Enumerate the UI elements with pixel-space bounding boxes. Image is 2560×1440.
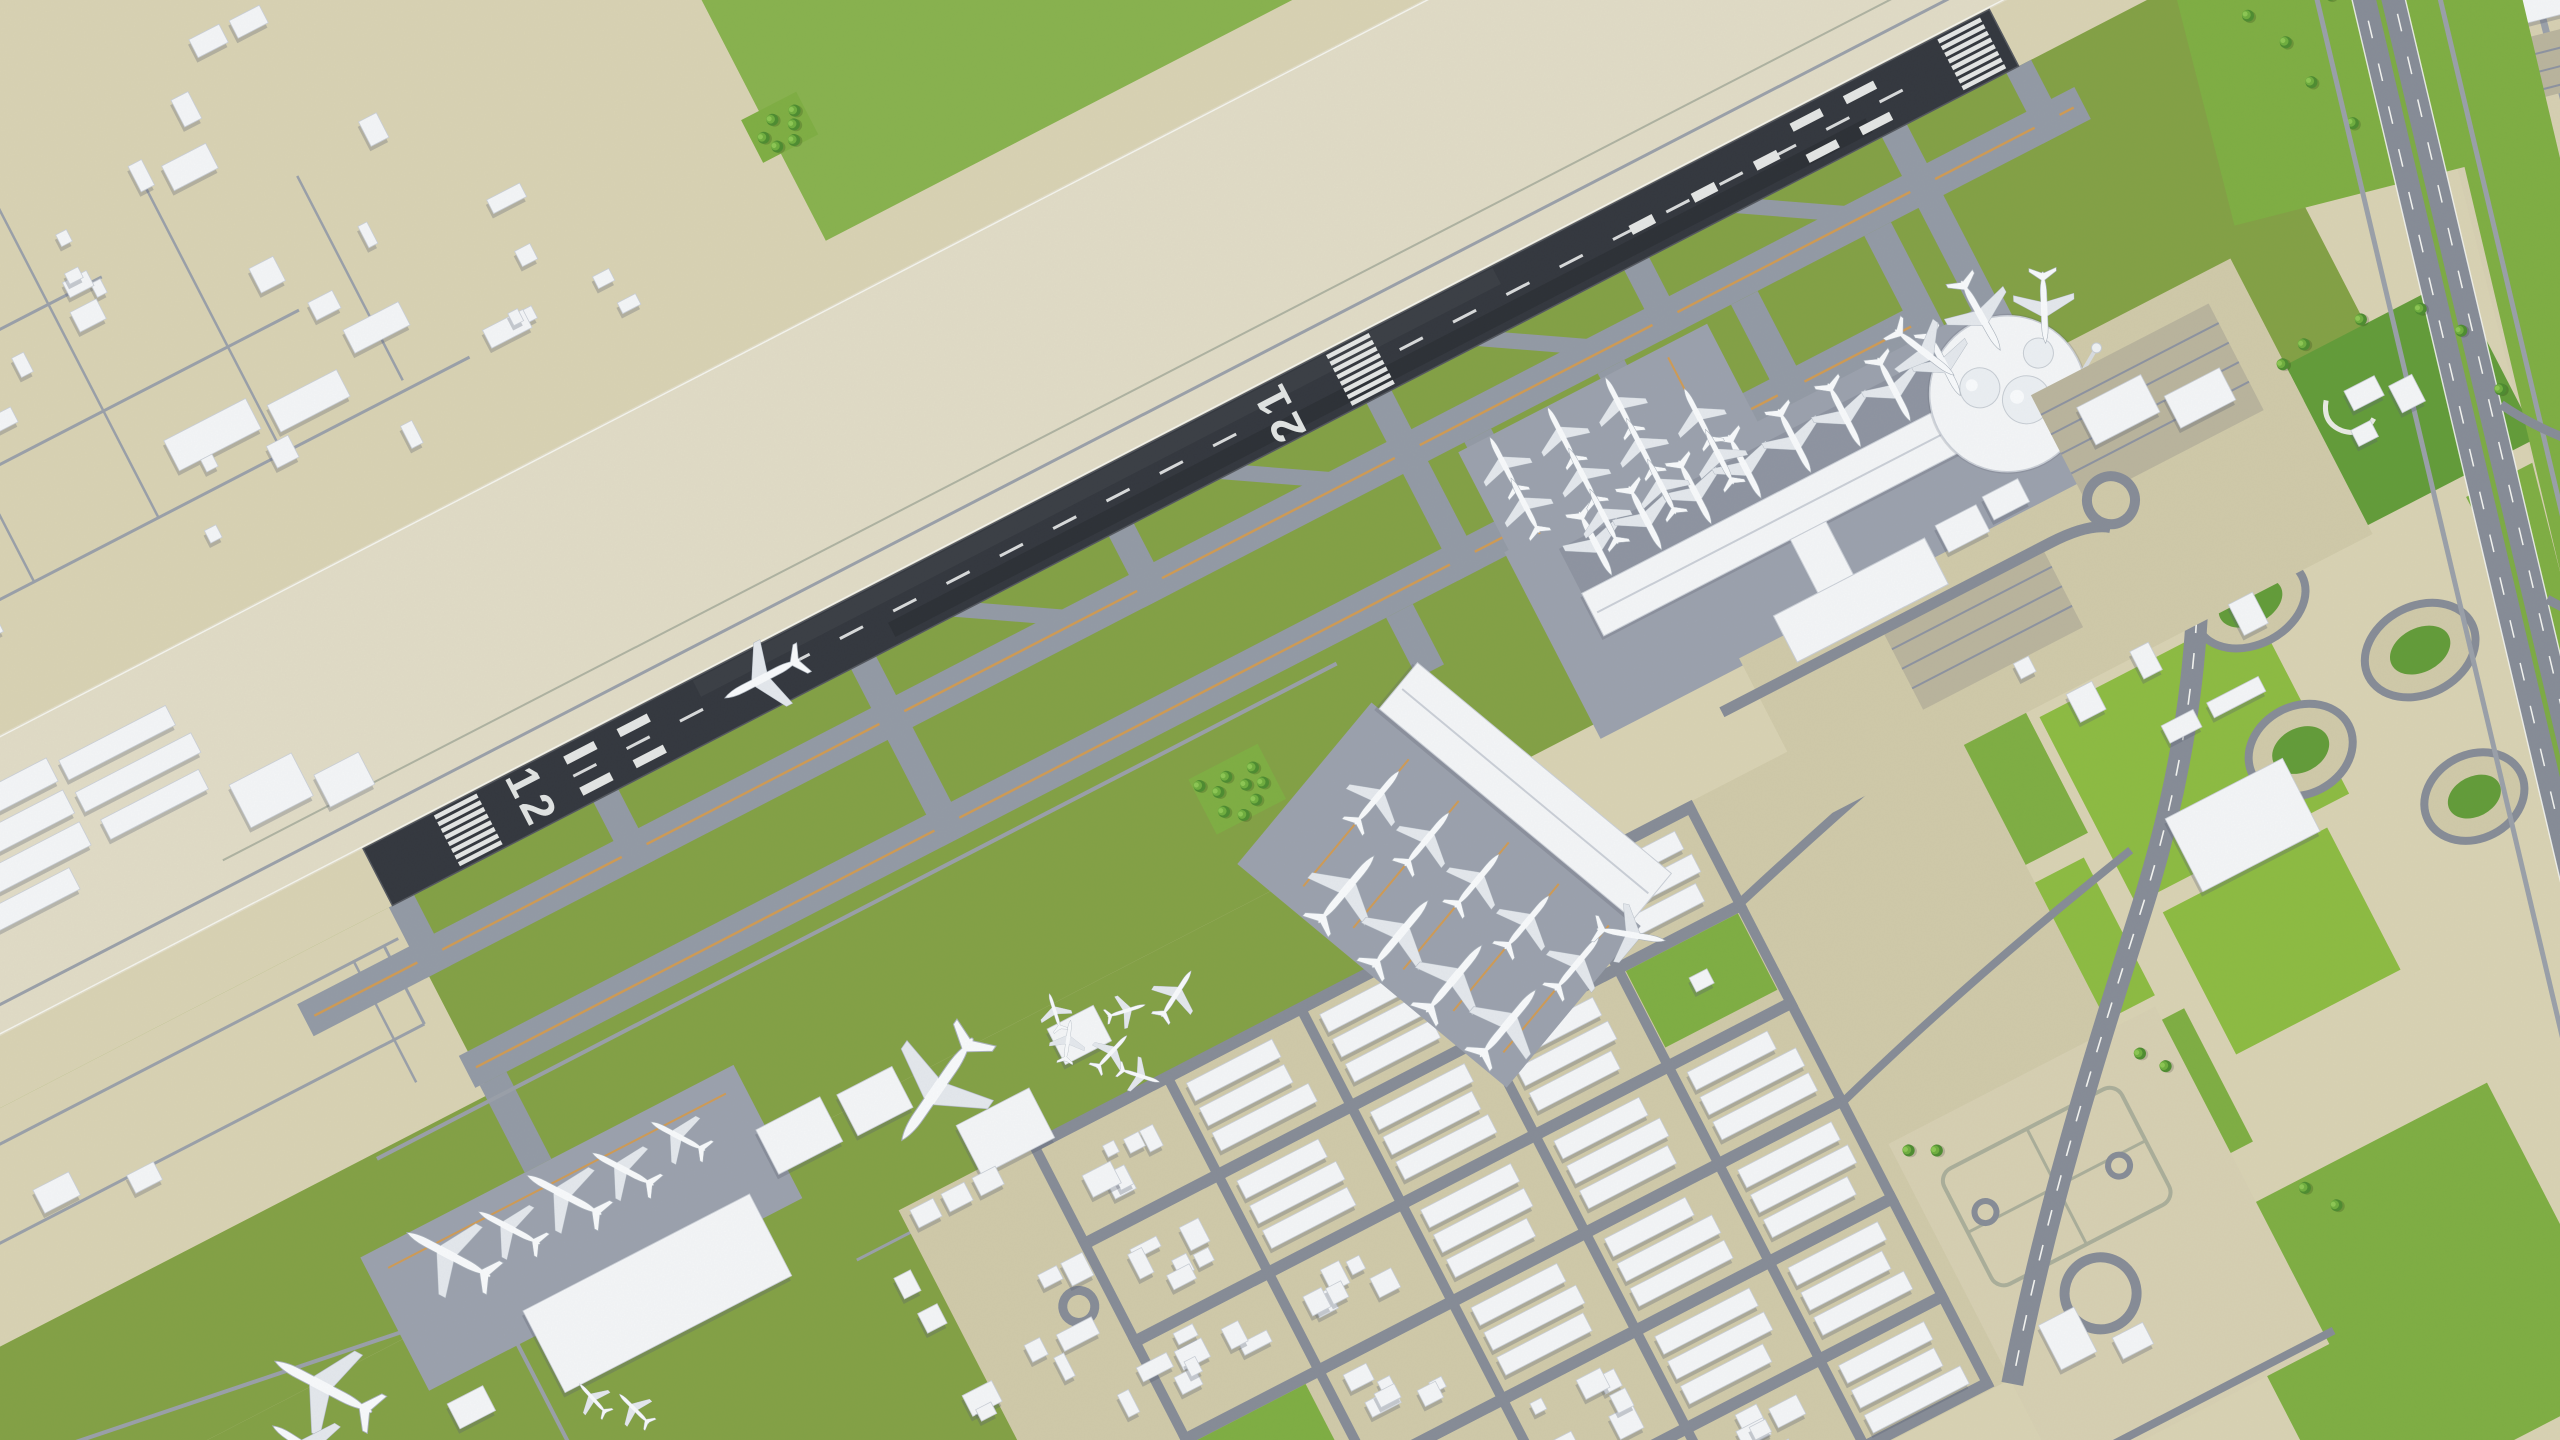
map-viewport: 12 21: [0, 0, 2560, 1440]
map-canvas: 12 21: [0, 0, 2560, 1440]
